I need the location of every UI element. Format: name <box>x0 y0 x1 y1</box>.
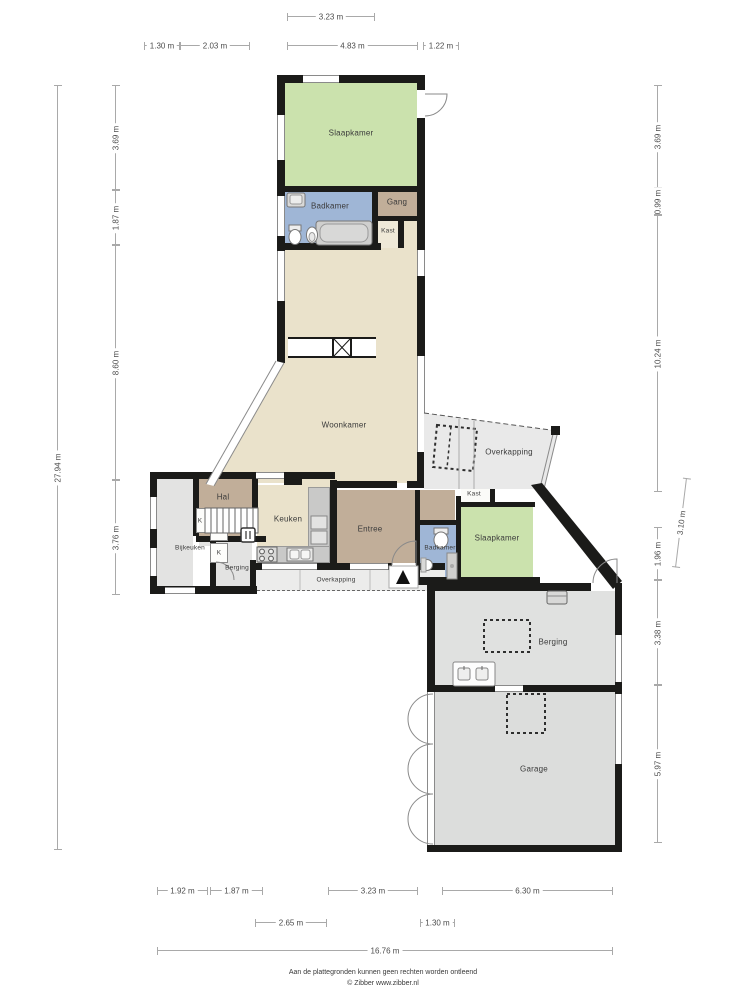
label-overkapping-right: Overkapping <box>485 448 533 457</box>
dim-top-130: 1.30 m <box>144 45 180 46</box>
label-bijkeuken: Bijkeuken <box>175 545 205 552</box>
boiler-icon <box>241 528 255 542</box>
sink-mid-base <box>421 558 426 572</box>
berging-dashed-hatch <box>484 620 530 652</box>
oven <box>311 516 327 529</box>
dim-left-376: 3.76 m <box>115 480 116 595</box>
garage-door-arc <box>408 744 433 769</box>
dim-bottom-265: 2.65 m <box>255 922 327 923</box>
label-kast-k-berging: K <box>217 550 222 557</box>
dim-bottom-130: 1.30 m <box>420 922 455 923</box>
label-entree: Entree <box>358 525 383 534</box>
dim-bottom-total: 16.76 m <box>157 950 613 951</box>
diagonal-window-line1 <box>206 361 276 484</box>
dim-left-187: 1.87 m <box>115 190 116 245</box>
dim-right-597: 5.97 m <box>657 685 658 843</box>
garage-door-arc <box>408 794 433 819</box>
label-berging-left: Berging <box>225 565 249 572</box>
label-kast-mid: Kast <box>467 491 481 498</box>
label-badkamer-top: Badkamer <box>311 202 349 211</box>
dim-top-122: 1.22 m <box>423 45 459 46</box>
door-arc-entree <box>392 541 416 565</box>
label-garage: Garage <box>520 765 548 774</box>
diagonal-window-line2 <box>214 363 284 486</box>
overkapping-corner-post <box>551 426 560 435</box>
kitchen-sink-basin1 <box>290 550 299 559</box>
dim-right-1024: 10.24 m <box>657 215 658 492</box>
kitchen-sink-basin2 <box>301 550 310 559</box>
shower-drain <box>450 564 454 568</box>
dim-right-369: 3.69 m <box>657 85 658 188</box>
garage-door-arc <box>408 769 433 794</box>
door-arc-top-wing <box>425 94 447 116</box>
fridge <box>311 531 327 544</box>
berging-boiler <box>547 591 567 604</box>
label-hal: Hal <box>217 493 230 502</box>
dim-top-483: 4.83 m <box>287 45 418 46</box>
label-gang: Gang <box>387 198 407 207</box>
disclaimer-line1: Aan de plattegronden kunnen geen rechten… <box>289 968 477 979</box>
disclaimer: Aan de plattegronden kunnen geen rechten… <box>289 968 477 989</box>
dim-right-338: 3.38 m <box>657 580 658 685</box>
dim-bottom-630: 6.30 m <box>442 890 613 891</box>
garage-door-arc <box>408 819 433 844</box>
label-slaapkamer-top: Slaapkamer <box>329 129 374 138</box>
bathtub-inner <box>320 224 368 242</box>
disclaimer-line2: © Zibber www.zibber.nl <box>289 979 477 990</box>
diagonal-window-band <box>206 361 284 486</box>
label-keuken: Keuken <box>274 515 302 524</box>
label-overkapping-bottom: Overkapping <box>316 577 355 584</box>
dim-left-860: 8.60 m <box>115 245 116 480</box>
dim-top-323: 3.23 m <box>287 16 375 17</box>
garage-door-arc <box>408 694 433 719</box>
garage-dashed-hatch <box>507 694 545 733</box>
garage-door-arc <box>408 719 433 744</box>
label-woonkamer: Woonkamer <box>322 421 367 430</box>
dim-bottom-192: 1.92 m <box>157 890 208 891</box>
dim-top-203: 2.03 m <box>180 45 250 46</box>
dim-bottom-187: 1.87 m <box>210 890 263 891</box>
toilet-top <box>289 230 301 245</box>
sink-top-basin <box>290 195 302 204</box>
dim-bottom-323: 3.23 m <box>328 890 418 891</box>
dim-left-369: 3.69 m <box>115 85 116 190</box>
label-berging-right: Berging <box>539 638 568 647</box>
dim-right-099: 0.99 m <box>657 188 658 215</box>
dim-right-196: 1.96 m <box>657 527 658 580</box>
floorplan-canvas: Slaapkamer Badkamer Gang Kast Woonkamer … <box>0 0 750 1000</box>
label-kast-top: Kast <box>381 228 395 235</box>
label-slaapkamer-mid: Slaapkamer <box>475 534 520 543</box>
bidet-top-inner <box>309 233 315 242</box>
label-kast-k-stairs: K <box>198 518 203 525</box>
label-badkamer-mid: Badkamer <box>424 545 455 552</box>
dim-left-total: 27.94 m <box>57 85 58 850</box>
slanted-wall <box>531 483 622 589</box>
